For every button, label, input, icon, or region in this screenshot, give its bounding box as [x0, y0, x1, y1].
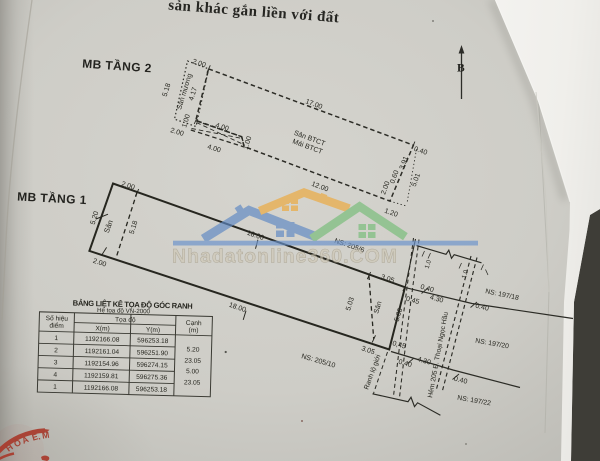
svg-text:2: 2 — [54, 347, 58, 354]
svg-text:(m): (m) — [189, 327, 199, 334]
svg-text:1192154.96: 1192154.96 — [84, 360, 119, 368]
svg-text:Nhadatonline360.COM: Nhadatonline360.COM — [172, 246, 397, 268]
svg-text:596274.15: 596274.15 — [136, 362, 168, 370]
svg-text:4: 4 — [53, 372, 57, 379]
svg-text:1: 1 — [54, 335, 58, 342]
svg-text:23.05: 23.05 — [184, 358, 201, 365]
svg-text:3: 3 — [54, 359, 58, 366]
svg-text:23.05: 23.05 — [184, 379, 201, 386]
svg-text:1192161.04: 1192161.04 — [85, 348, 120, 356]
svg-text:Y(m): Y(m) — [146, 327, 160, 334]
svg-text:1192166.08: 1192166.08 — [85, 336, 120, 344]
svg-text:B: B — [457, 63, 465, 75]
svg-text:596253.18: 596253.18 — [136, 386, 168, 394]
svg-text:X(m): X(m) — [95, 325, 109, 332]
svg-text:M: M — [41, 430, 50, 441]
svg-text:Tọa độ: Tọa độ — [115, 316, 136, 324]
svg-text:điểm: điểm — [49, 321, 64, 329]
svg-text:1192159.81: 1192159.81 — [84, 372, 119, 380]
svg-text:596275.36: 596275.36 — [136, 374, 168, 382]
svg-text:5.00: 5.00 — [186, 368, 199, 375]
svg-text:596251.90: 596251.90 — [137, 349, 169, 357]
svg-text:1: 1 — [53, 384, 57, 391]
svg-text:596253.18: 596253.18 — [137, 337, 169, 345]
svg-text:1192166.08: 1192166.08 — [84, 385, 119, 393]
svg-text:5.20: 5.20 — [187, 346, 200, 353]
